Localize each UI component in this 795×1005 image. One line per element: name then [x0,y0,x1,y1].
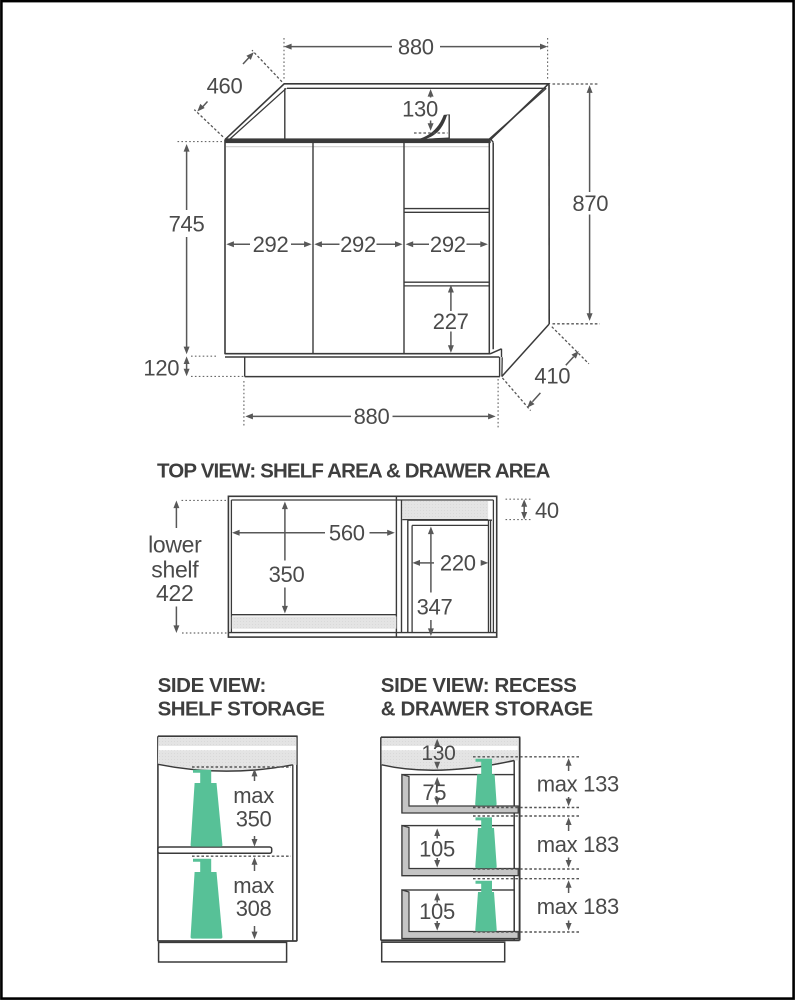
svg-text:SHELF STORAGE: SHELF STORAGE [158,698,325,721]
svg-text:lower: lower [148,532,202,558]
svg-text:TOP VIEW: SHELF AREA & DRAWER: TOP VIEW: SHELF AREA & DRAWER AREA [157,460,551,483]
svg-text:880: 880 [354,404,390,429]
svg-text:870: 870 [572,191,608,216]
svg-text:460: 460 [207,74,243,99]
svg-text:350: 350 [236,806,272,831]
svg-text:292: 292 [253,232,289,257]
svg-text:75: 75 [422,780,446,805]
svg-text:410: 410 [534,363,570,388]
svg-text:105: 105 [419,899,455,924]
svg-text:max 133: max 133 [537,771,619,796]
svg-text:292: 292 [340,232,376,257]
svg-text:SIDE VIEW:: SIDE VIEW: [158,674,266,697]
svg-text:130: 130 [402,97,438,122]
svg-text:308: 308 [236,896,272,921]
svg-text:105: 105 [419,837,455,862]
svg-text:40: 40 [535,498,559,523]
svg-text:292: 292 [430,232,466,257]
svg-text:120: 120 [143,355,179,380]
svg-text:560: 560 [329,521,365,546]
svg-text:227: 227 [433,309,469,334]
svg-text:max 183: max 183 [537,894,619,919]
svg-text:422: 422 [156,580,193,606]
svg-text:130: 130 [421,742,455,765]
svg-text:SIDE VIEW: RECESS: SIDE VIEW: RECESS [381,674,577,697]
svg-text:880: 880 [398,35,434,60]
svg-text:max: max [233,783,274,808]
svg-text:220: 220 [440,550,476,575]
svg-text:350: 350 [269,562,305,587]
svg-text:max 183: max 183 [537,832,619,857]
svg-text:max: max [233,873,274,898]
svg-text:745: 745 [169,212,205,237]
svg-text:& DRAWER STORAGE: & DRAWER STORAGE [381,698,593,721]
svg-text:347: 347 [417,595,453,620]
svg-text:shelf: shelf [151,557,199,583]
